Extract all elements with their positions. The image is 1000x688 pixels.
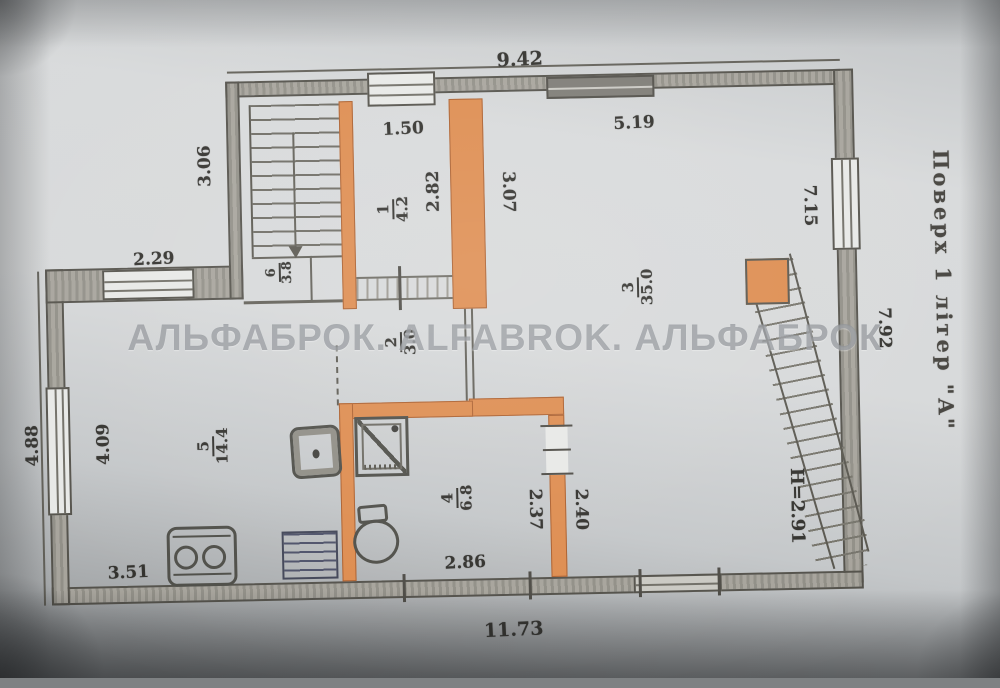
window-bottom-wall — [634, 573, 722, 593]
dim-upper-left: 3.06 — [194, 145, 215, 187]
room-area: 35.0 — [638, 268, 655, 305]
partition-room1-left — [339, 101, 357, 309]
room1-door-tick — [398, 266, 402, 310]
dim-tick — [717, 567, 721, 595]
scanned-floor-plan-photo: { "photo": { "watermark": "АЛЬФАБРОК. AL… — [0, 0, 1000, 678]
partition-room1-right — [449, 98, 487, 309]
dim-right-upper: 7.15 — [799, 185, 820, 227]
staircase-upper-left — [249, 103, 346, 257]
ceiling-height-note: H=2.91 — [786, 468, 809, 544]
room-label-6: 6 3.8 — [265, 261, 296, 284]
room-number: 4 — [439, 488, 458, 509]
furnace-block — [745, 258, 790, 305]
dim-bath-left: 2.37 — [525, 488, 546, 530]
dim-step: 2.29 — [133, 248, 175, 270]
room-label-5: 5 14.4 — [195, 427, 231, 464]
window-top-right — [546, 75, 654, 99]
dim-top-window: 1.50 — [382, 118, 424, 140]
shower-icon — [354, 416, 409, 477]
dim-bath-width: 2.86 — [444, 552, 486, 574]
stair-bottom-line — [244, 299, 345, 304]
room-area: 4.2 — [394, 196, 411, 222]
dim-left-outer: 4.88 — [22, 425, 43, 467]
room-number: 3 — [620, 277, 639, 298]
room-area: 6.8 — [458, 485, 475, 511]
stair-down-arrow-icon — [289, 246, 303, 258]
dim-top-total: 9.42 — [496, 47, 543, 71]
window-left-wall — [45, 387, 72, 515]
paper-background: 1 4.2 2 3.0 3 35.0 4 6.8 5 14.4 6 3.8 9.… — [0, 0, 1000, 678]
room-area: 14.4 — [213, 427, 230, 464]
dim-tick — [638, 569, 642, 597]
room6-divider-line — [310, 256, 313, 302]
dim-tick — [528, 571, 532, 599]
radiator-icon — [282, 530, 339, 579]
sink-icon — [289, 424, 343, 480]
dim-room1-depth: 2.82 — [423, 170, 444, 212]
dim-room1-right: 3.07 — [498, 171, 519, 213]
partition-bath-top-right — [469, 397, 564, 417]
watermark-text: АЛЬФАБРОК. ALFABROK. АЛЬФАБРОК — [127, 317, 882, 359]
room-label-1: 1 4.2 — [375, 196, 411, 223]
window-right-wall — [831, 157, 861, 250]
dim-bath-right: 2.40 — [571, 488, 592, 530]
bath-door-tick-top — [540, 425, 572, 428]
room-area: 3.8 — [281, 261, 296, 284]
dim-bottom-left: 3.51 — [107, 562, 149, 584]
dim-bottom-total: 11.73 — [483, 617, 543, 642]
room-number: 1 — [375, 199, 394, 220]
bath-door-tick-bottom — [541, 472, 573, 475]
room-label-4: 4 6.8 — [439, 485, 475, 512]
room-number: 5 — [195, 436, 214, 457]
room1-door-band — [356, 275, 452, 301]
window-step-wall — [102, 268, 195, 300]
stove-icon — [166, 526, 237, 587]
floor-title: Поверх 1 літер "А" — [928, 149, 959, 432]
window-top-room1 — [367, 71, 436, 106]
dim-left-inner: 4.09 — [93, 423, 114, 465]
dim-tick — [402, 574, 406, 602]
dim-top-right: 5.19 — [613, 112, 655, 134]
toilet-icon — [350, 503, 403, 569]
room-label-3: 3 35.0 — [620, 268, 656, 305]
wall-top — [225, 69, 840, 98]
